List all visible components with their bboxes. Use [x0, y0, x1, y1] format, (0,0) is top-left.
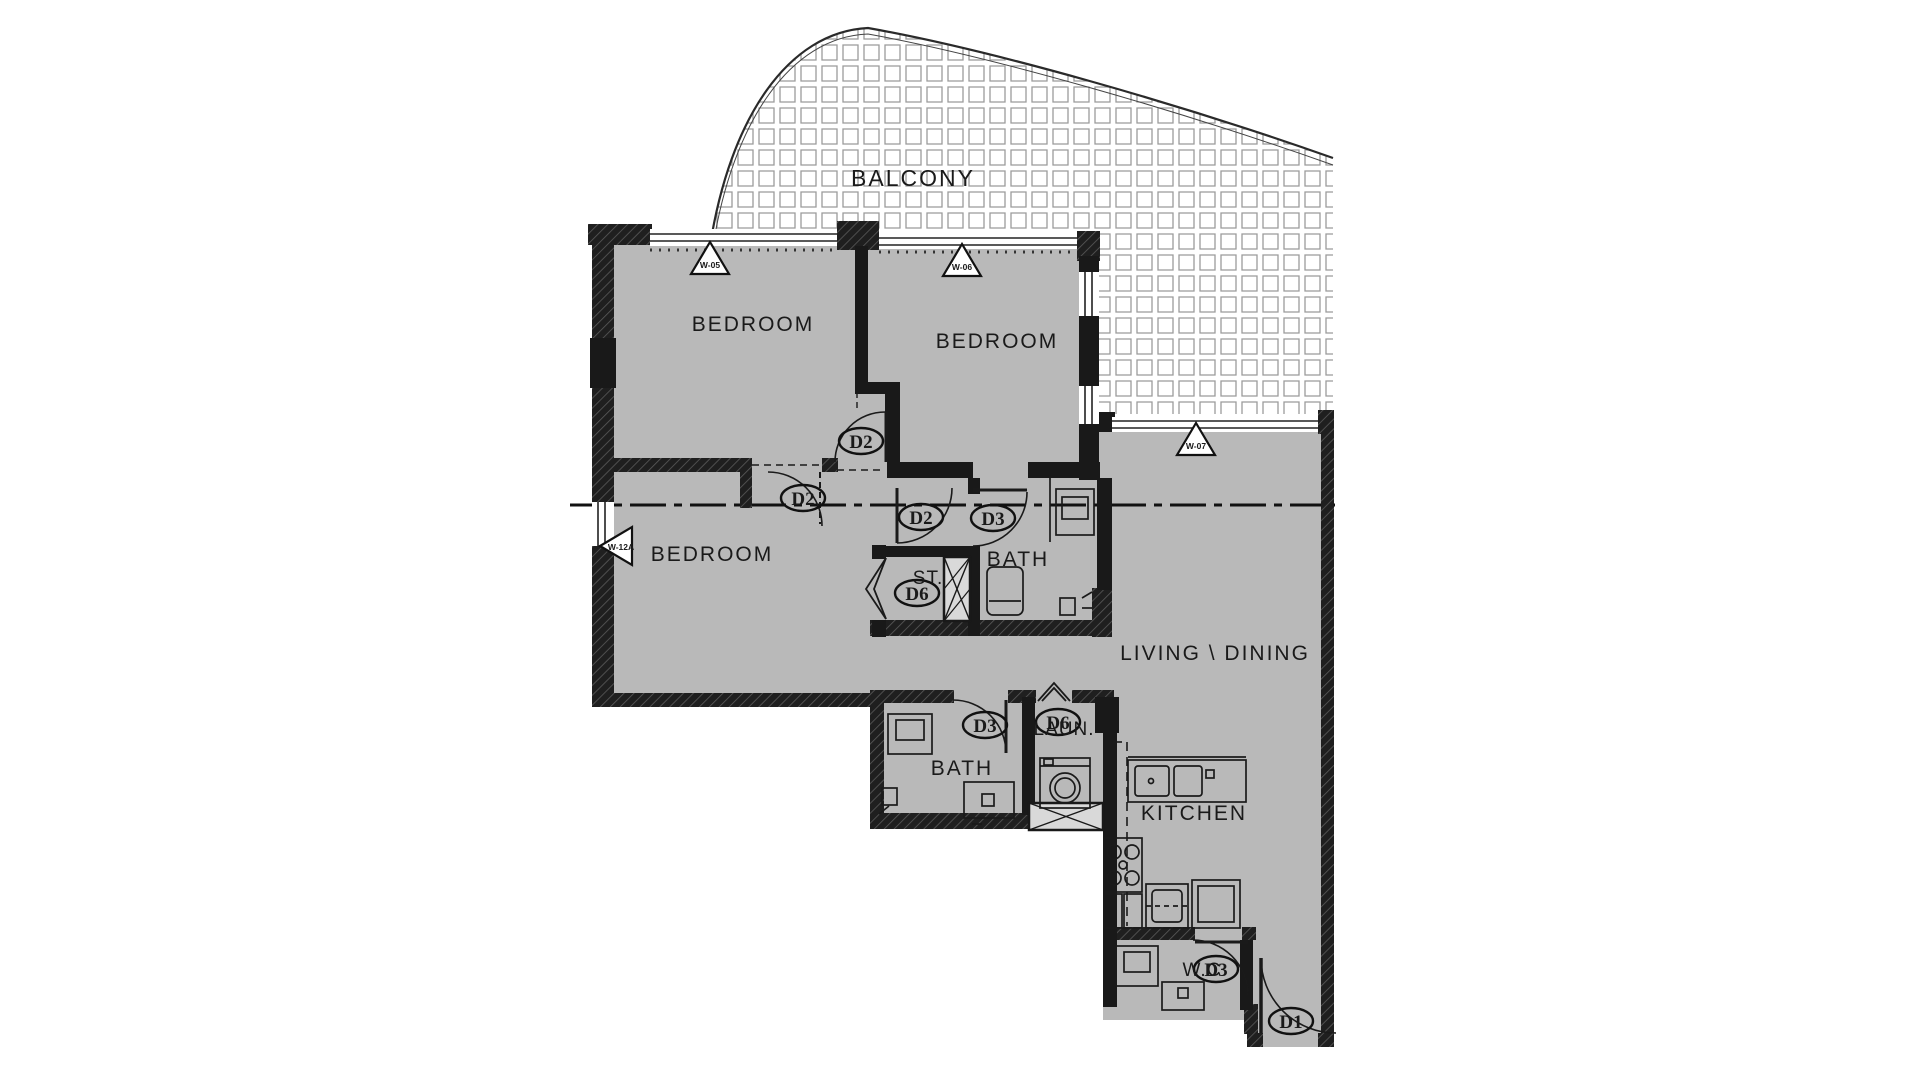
room-label-bedroom2: BEDROOM — [936, 330, 1059, 353]
door-tag-bedroom1-label: D2 — [791, 489, 814, 510]
door-tag-bath1-label: D3 — [981, 509, 1004, 530]
door-tag-entrance-label: D1 — [1279, 1012, 1302, 1033]
floor-plan-drawing: D2 D2 D2 D3 D6 D3 D6 D3 — [0, 0, 1920, 1080]
room-label-wc: W.C — [1183, 960, 1222, 981]
room-label-laundry: LAUN. — [1034, 719, 1095, 740]
room-label-bath1: BATH — [987, 548, 1049, 571]
window-tag-w06-label: W-06 — [952, 262, 972, 272]
room-label-living: LIVING \ DINING — [1120, 642, 1310, 665]
door-tag-bath2-label: D3 — [973, 716, 996, 737]
window-tag-w07-label: W-07 — [1186, 441, 1206, 451]
room-label-bath2: BATH — [931, 757, 993, 780]
door-tag-bedroom2-label: D2 — [849, 432, 872, 453]
room-label-bedroom1: BEDROOM — [692, 313, 815, 336]
room-label-balcony: BALCONY — [851, 165, 975, 191]
room-label-kitchen: KITCHEN — [1141, 802, 1247, 825]
door-tag-hall-label: D2 — [909, 508, 932, 529]
window-tag-w05-label: W-05 — [700, 260, 720, 270]
room-label-storage: ST. — [913, 568, 943, 589]
room-label-bedroom3: BEDROOM — [651, 543, 774, 566]
window-tag-w12a-label: W-12A — [608, 542, 634, 552]
floor-plan-page: D2 D2 D2 D3 D6 D3 D6 D3 — [0, 0, 1920, 1080]
